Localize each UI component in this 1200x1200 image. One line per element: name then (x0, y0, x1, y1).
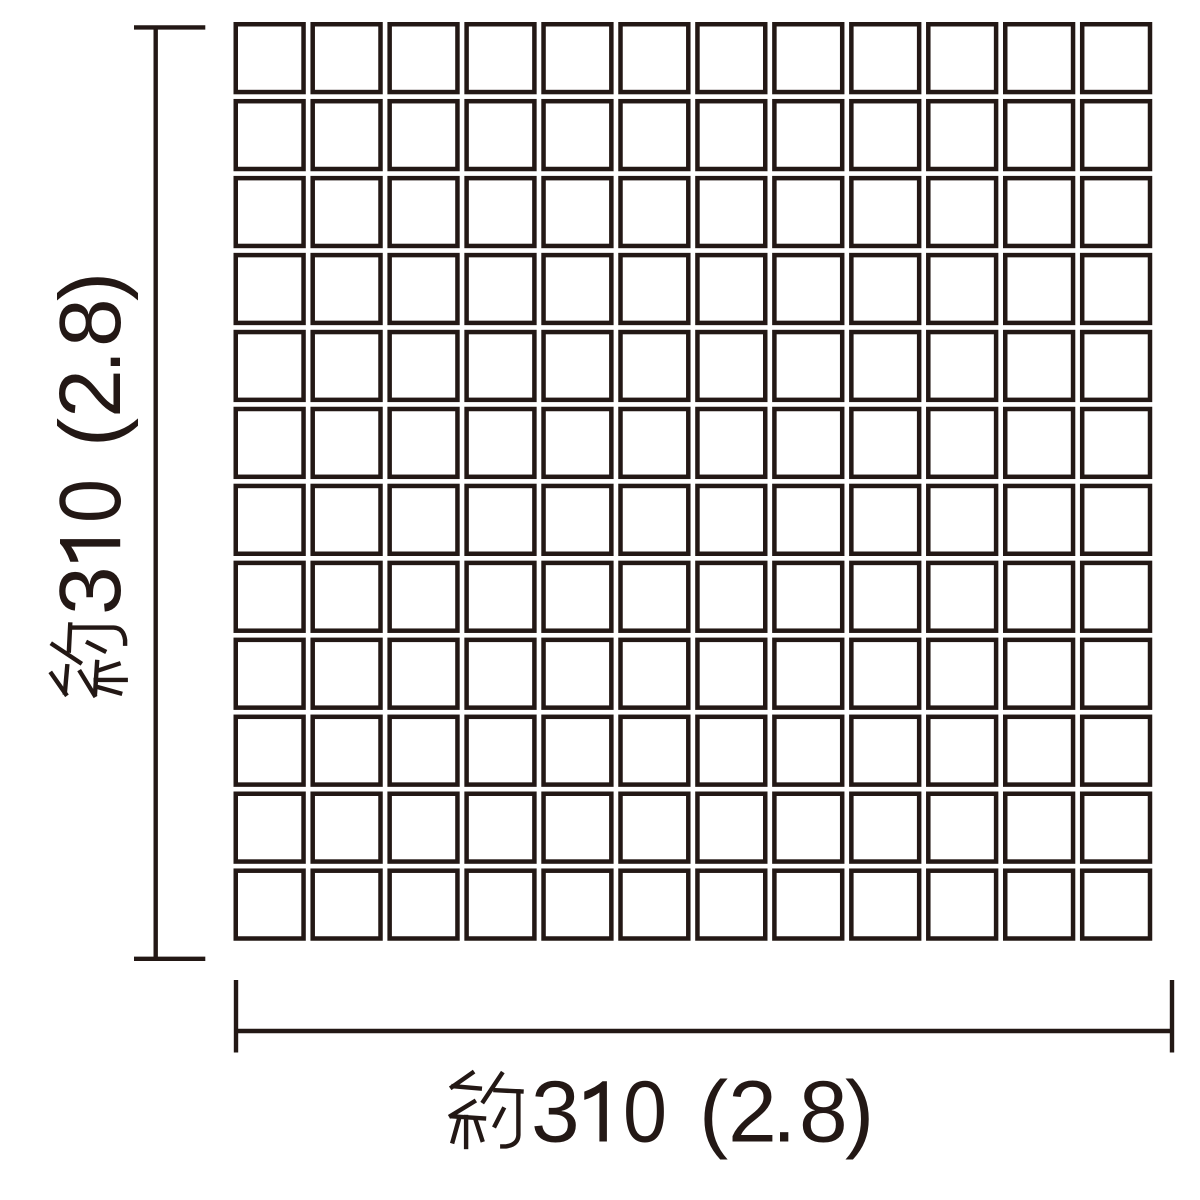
svg-text:0: 0 (623, 1063, 667, 1161)
svg-text:8: 8 (799, 1063, 848, 1161)
svg-text:): ) (845, 1063, 874, 1161)
svg-text:(2: (2 (699, 1063, 777, 1161)
svg-text:.: . (772, 1063, 796, 1161)
svg-text:3: 3 (531, 1063, 580, 1161)
